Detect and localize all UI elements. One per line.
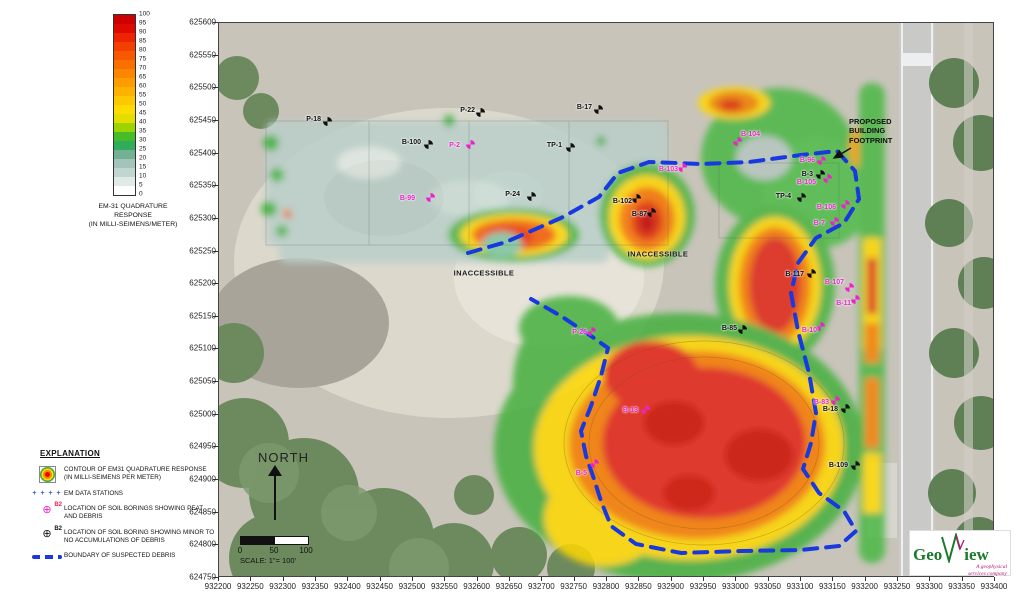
x-axis-tick [671,577,672,581]
boring-marker-b-83 [831,396,840,405]
boring-marker-p-22 [476,108,485,117]
color-scale-tick: 0 [139,191,143,198]
station-label-b-13: B-13 [623,407,638,414]
station-label-b-87: B-87 [632,211,647,218]
color-scale-tick: 25 [139,146,146,153]
legend-item-boring-peat: ⊕B2LOCATION OF SOIL BORINGS SHOWING PEAT… [30,505,245,521]
color-scale-tick: 15 [139,164,146,171]
x-axis-tick [703,577,704,581]
boring-marker-p-24 [527,192,536,201]
scalebar-label: 50 [270,546,279,555]
y-axis-label: 625600 [178,18,216,27]
y-axis-label: 625350 [178,181,216,190]
legend-item-text: LOCATION OF SOIL BORING SHOWING MINOR TO… [64,529,214,545]
x-axis-label: 932500 [399,582,426,591]
legend-text-line: LOCATION OF SOIL BORINGS SHOWING PEAT [64,505,203,513]
caption-line: (IN MILLI-SEIMENS/METER) [40,220,226,229]
color-scale-tick: 90 [139,29,146,36]
boring-marker-b-17 [594,105,603,114]
station-label-b-83: B-83 [814,399,829,406]
em-station-plus-icon: + + + + [30,490,64,497]
boring-marker-tp-1 [566,143,575,152]
station-label-b-11: B-11 [836,300,851,307]
station-label-b-109: B-109 [829,462,848,469]
x-axis-label: 932350 [302,582,329,591]
boundary-icon [30,552,64,559]
color-scale-tick: 35 [139,128,146,135]
station-label-b-3: B-3 [802,171,813,178]
logo-tagline-line: A geophysical [913,564,1007,571]
legend-text-line: CONTOUR OF EM31 QUADRATURE RESPONSE [64,466,207,474]
boring-minor-icon: ⊕B2 [30,529,64,540]
legend-item-text: CONTOUR OF EM31 QUADRATURE RESPONSE(IN M… [64,466,207,482]
station-label-tp-1: TP-1 [547,142,562,149]
station-label-b-99: B-99 [400,195,415,202]
color-scale-cell [114,15,135,24]
boring-marker-p-2 [466,140,475,149]
color-scale-ticks: 1009590858075706560555045403530252015105… [139,14,163,196]
x-axis-label: 932900 [657,582,684,591]
x-axis-tick [929,577,930,581]
color-scale [113,14,136,196]
caption-line: RESPONSE [40,211,226,220]
x-axis-label: 932400 [334,582,361,591]
boring-peat-icon: ⊕B2 [30,505,64,516]
scalebar-white-segment [274,536,309,545]
boring-marker-b-102 [632,194,641,203]
x-axis-label: 933050 [754,582,781,591]
callout-line: PROPOSED [849,117,892,126]
x-axis-label: 933350 [948,582,975,591]
station-label-p-26: P-26 [572,329,587,336]
x-axis-tick [444,577,445,581]
color-scale-cell [114,51,135,60]
x-axis-tick [994,577,995,581]
y-axis-label: 625050 [178,377,216,386]
logo-text-geo: Geo [913,546,942,563]
x-axis-label: 932700 [528,582,555,591]
color-scale-cell [114,141,135,150]
boring-marker-b-99 [426,193,435,202]
x-axis-label: 933000 [722,582,749,591]
boring-marker-b-105 [823,174,832,183]
x-axis-tick [865,577,866,581]
station-label-b-102: B-102 [613,198,632,205]
y-axis-label: 625250 [178,246,216,255]
station-label-b-7: B-7 [814,220,825,227]
color-scale-cell [114,42,135,51]
boring-marker-b-100 [424,140,433,149]
x-axis-tick [541,577,542,581]
x-axis-tick [606,577,607,581]
contour-swatch-icon [39,466,56,483]
x-axis-tick [574,577,575,581]
boring-marker-b-106 [841,200,850,209]
color-scale-cell [114,168,135,177]
legend-item-contour: CONTOUR OF EM31 QUADRATURE RESPONSE(IN M… [30,466,245,483]
logo-wave-icon [941,533,965,563]
y-axis-label: 625500 [178,83,216,92]
color-scale-cell [114,69,135,78]
station-label-b-106: B-106 [817,204,836,211]
north-arrow-line [274,474,276,520]
map-graphic [219,23,993,576]
x-axis-tick [347,577,348,581]
station-label-p-22: P-22 [460,107,475,114]
scalebar-caption: SCALE: 1"= 100' [240,556,296,565]
x-axis-tick [638,577,639,581]
color-scale-tick: 20 [139,155,146,162]
color-scale-cell [114,78,135,87]
station-label-b-96: B-96 [800,157,815,164]
x-axis-tick [509,577,510,581]
station-label-b-104: B-104 [741,131,760,138]
x-axis-label: 932950 [690,582,717,591]
color-scale-tick: 60 [139,83,146,90]
building-footprint-callout: PROPOSEDBUILDINGFOOTPRINT [849,117,892,145]
station-label-b-117: B-117 [785,271,804,278]
station-label-tp-4: TP-4 [776,193,791,200]
boring-marker-b-109 [851,461,860,470]
color-scale-tick: 85 [139,38,146,45]
callout-line: FOOTPRINT [849,136,892,145]
contour-icon [30,466,64,483]
legend-item-text: EM DATA STATIONS [64,490,123,498]
logo-text-view: iew [964,546,989,563]
color-scale-tick: 80 [139,47,146,54]
x-axis-tick [800,577,801,581]
boring-marker-b-117 [807,269,816,278]
station-label-p-24: P-24 [505,191,520,198]
boring-marker-b-85 [738,325,747,334]
dashed-boundary-icon [32,555,62,559]
y-axis-label: 625150 [178,311,216,320]
boring-marker-b-107 [845,283,854,292]
station-label-b-85: B-85 [722,325,737,332]
boring-marker-b-103 [678,163,687,172]
legend-text-line: AND DEBRIS [64,513,203,521]
color-scale-cell [114,159,135,168]
color-scale-tick: 50 [139,101,146,108]
color-scale-tick: 40 [139,119,146,126]
em-stations-icon: + + + + [30,490,64,497]
x-axis-tick [218,577,219,581]
y-axis-label: 625000 [178,409,216,418]
figure-page: 9322009322509323009323509324009324509325… [0,0,1024,605]
legend-item-boundary: BOUNDARY OF SUSPECTED DEBRIS [30,552,245,560]
legend-text-line: BOUNDARY OF SUSPECTED DEBRIS [64,552,175,560]
y-axis-label: 625550 [178,50,216,59]
legend-text-line: EM DATA STATIONS [64,490,123,498]
y-axis-label: 625450 [178,115,216,124]
color-scale-tick: 70 [139,65,146,72]
station-label-b-100: B-100 [402,139,421,146]
color-scale-cell [114,150,135,159]
map-frame [218,22,994,577]
x-axis-label: 933300 [916,582,943,591]
boring-marker-b-104 [733,137,742,146]
scalebar-label: 100 [299,546,312,555]
logo-wordmark: Geo iew [913,533,1007,563]
station-label-b-18: B-18 [823,406,838,413]
explanation-items: CONTOUR OF EM31 QUADRATURE RESPONSE(IN M… [30,466,245,560]
x-axis-tick [962,577,963,581]
color-scale-cell [114,24,135,33]
x-axis-tick [477,577,478,581]
legend-item-text: LOCATION OF SOIL BORINGS SHOWING PEATAND… [64,505,203,521]
station-label-p-18: P-18 [306,116,321,123]
logo-tagline: A geophysical services company [913,564,1007,577]
station-label-b-10: B-10 [802,327,817,334]
inaccessible-label: INACCESSIBLE [628,250,689,259]
callout-arrow [818,142,854,164]
x-axis-label: 932650 [496,582,523,591]
scalebar-black-segment [240,536,275,545]
x-axis-label: 932850 [625,582,652,591]
legend-text-line: (IN MILLI-SEIMENS PER METER) [64,474,207,482]
station-label-b-5: B-5 [576,470,587,477]
legend-text-line: LOCATION OF SOIL BORING SHOWING MINOR TO [64,529,214,537]
geoview-logo: Geo iew A geophysical services company [910,531,1010,575]
color-scale-tick: 100 [139,11,150,18]
color-scale-tick: 55 [139,92,146,99]
caption-line: EM-31 QUADRATURE [40,202,226,211]
x-axis-tick [250,577,251,581]
inaccessible-label: INACCESSIBLE [454,269,515,278]
station-label-b-17: B-17 [577,104,592,111]
north-label: NORTH [258,450,309,465]
color-scale-cell [114,87,135,96]
legend-text-line: NO ACCUMULATIONS OF DEBRIS [64,537,214,545]
color-scale-tick: 5 [139,182,143,189]
boring-marker-b-87 [647,208,656,217]
x-axis-tick [897,577,898,581]
x-axis-label: 933100 [787,582,814,591]
x-axis-tick [735,577,736,581]
station-label-p-2: P-2 [449,142,460,149]
y-axis-label: 624750 [178,573,216,582]
boring-marker-b-5 [590,459,599,468]
x-axis-label: 933150 [819,582,846,591]
color-scale-tick: 65 [139,74,146,81]
boring-tag-label: B2 [54,502,62,508]
x-axis-label: 933200 [851,582,878,591]
color-scale-tick: 75 [139,56,146,63]
boring-marker-b-18 [841,404,850,413]
x-axis-tick [315,577,316,581]
color-scale-cell [114,96,135,105]
station-label-b-103: B-103 [659,166,678,173]
color-scale-cell [114,123,135,132]
logo-tagline-line: services company [913,571,1007,578]
x-axis-label: 932250 [237,582,264,591]
callout-line: BUILDING [849,126,892,135]
boring-tag-label: B2 [54,526,62,532]
color-scale-tick: 95 [139,20,146,27]
color-scale-cell [114,33,135,42]
x-axis-label: 933250 [884,582,911,591]
x-axis-label: 932450 [366,582,393,591]
legend-item-em-stations: + + + +EM DATA STATIONS [30,490,245,498]
y-axis-label: 625200 [178,279,216,288]
y-axis-label: 625400 [178,148,216,157]
x-axis-label: 932750 [560,582,587,591]
x-axis-tick [412,577,413,581]
x-axis-tick [380,577,381,581]
legend-item-text: BOUNDARY OF SUSPECTED DEBRIS [64,552,175,560]
x-axis-label: 932550 [431,582,458,591]
x-axis-tick [768,577,769,581]
boring-marker-b-13 [641,405,650,414]
color-scale-cell [114,177,135,186]
x-axis-label: 933400 [981,582,1008,591]
x-axis-tick [283,577,284,581]
color-scale-cell [114,186,135,195]
color-scale-tick: 10 [139,173,146,180]
boring-marker-b-10 [816,322,825,331]
station-label-b-105: B-105 [797,179,816,186]
boring-marker-p-18 [323,117,332,126]
boring-marker-b-11 [851,295,860,304]
x-axis-label: 932800 [593,582,620,591]
color-scale-cell [114,60,135,69]
x-axis-label: 932300 [269,582,296,591]
y-axis-label: 625100 [178,344,216,353]
boring-marker-tp-4 [797,193,806,202]
color-scale-tick: 45 [139,110,146,117]
explanation-title: EXPLANATION [40,449,245,458]
boring-marker-p-26 [587,327,596,336]
color-scale-cell [114,132,135,141]
color-scale-caption: EM-31 QUADRATURE RESPONSE (IN MILLI-SEIM… [40,202,226,230]
station-label-b-107: B-107 [825,279,844,286]
explanation-legend: EXPLANATION CONTOUR OF EM31 QUADRATURE R… [30,449,245,567]
color-scale-tick: 30 [139,137,146,144]
legend-item-boring-minor: ⊕B2LOCATION OF SOIL BORING SHOWING MINOR… [30,529,245,545]
x-axis-label: 932200 [205,582,232,591]
color-scale-cell [114,105,135,114]
boring-marker-b-7 [830,217,839,226]
color-scale-cell [114,114,135,123]
x-axis-tick [832,577,833,581]
x-axis-label: 932600 [463,582,490,591]
